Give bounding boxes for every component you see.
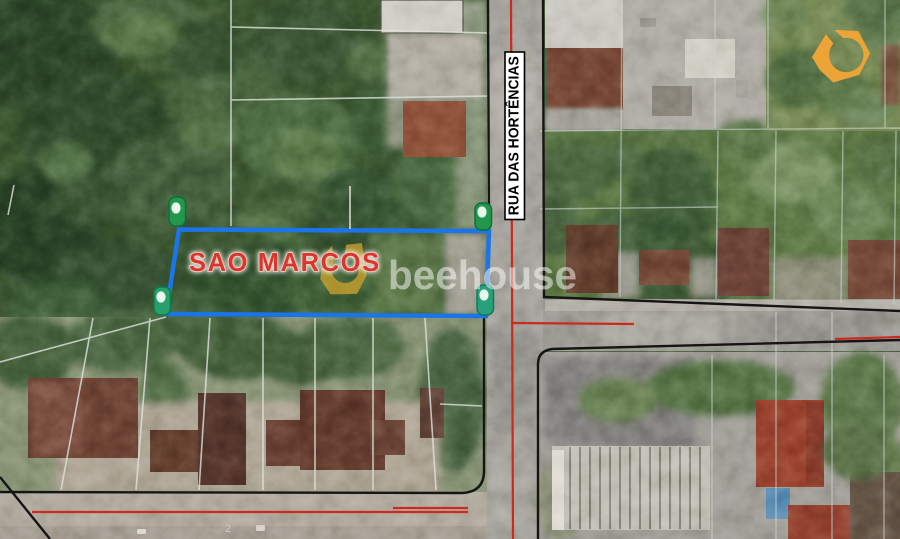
svg-text:2: 2	[225, 523, 231, 535]
svg-text:SAO MARCOS: SAO MARCOS	[189, 249, 381, 277]
svg-text:RUA DAS HORTÊNCIAS: RUA DAS HORTÊNCIAS	[505, 56, 523, 215]
svg-text:beehouse: beehouse	[388, 252, 577, 298]
